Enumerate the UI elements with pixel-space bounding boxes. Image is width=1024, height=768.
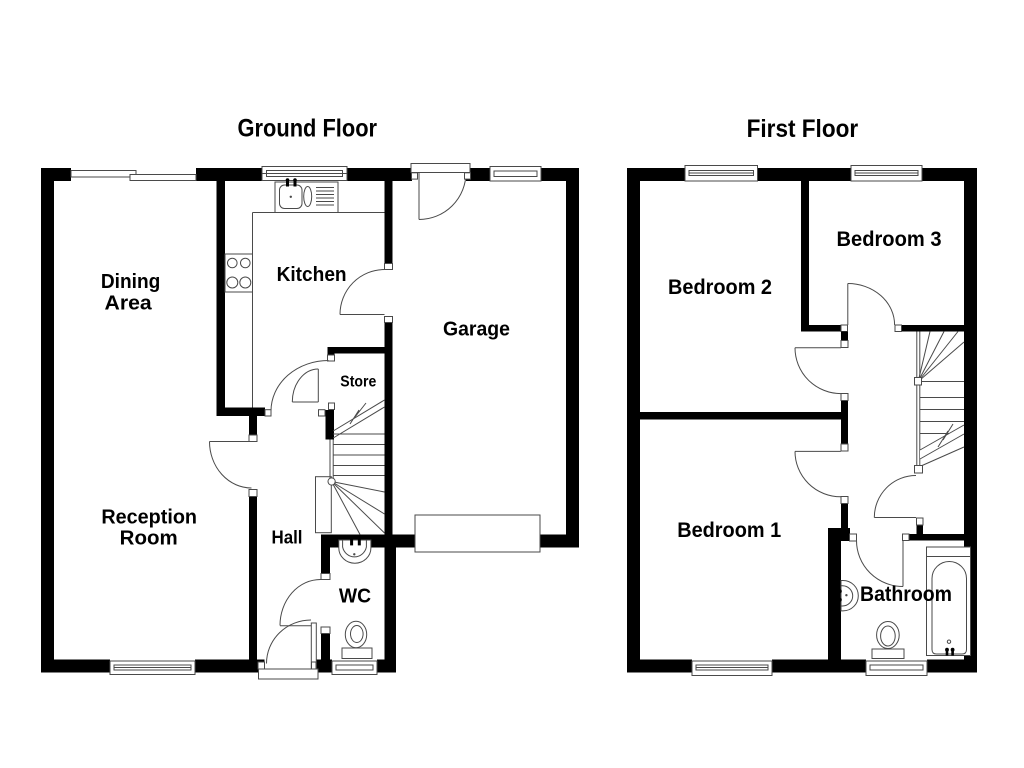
- svg-text:Kitchen: Kitchen: [277, 264, 347, 286]
- svg-text:Store: Store: [340, 374, 376, 391]
- svg-text:WC: WC: [339, 586, 371, 608]
- svg-text:Hall: Hall: [272, 527, 303, 548]
- svg-text:Reception: Reception: [101, 507, 197, 529]
- svg-text:Area: Area: [105, 293, 153, 315]
- svg-text:Bedroom 3: Bedroom 3: [837, 228, 942, 251]
- svg-text:Bedroom 1: Bedroom 1: [677, 519, 781, 542]
- svg-text:Room: Room: [120, 528, 178, 550]
- svg-text:Bathroom: Bathroom: [860, 583, 952, 606]
- svg-text:Ground Floor: Ground Floor: [238, 115, 378, 143]
- svg-text:Dining: Dining: [101, 271, 160, 293]
- svg-text:First Floor: First Floor: [747, 115, 859, 143]
- svg-text:Garage: Garage: [443, 319, 510, 341]
- svg-text:Bedroom 2: Bedroom 2: [668, 276, 772, 299]
